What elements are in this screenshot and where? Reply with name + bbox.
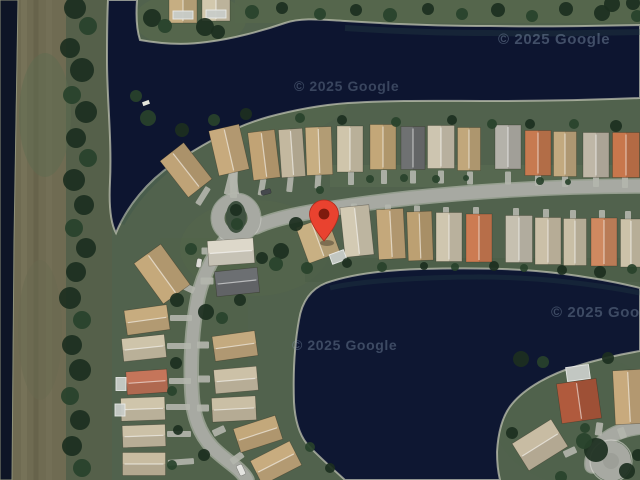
- driveway: [410, 171, 416, 184]
- tree: [62, 436, 82, 456]
- tree: [447, 115, 457, 125]
- tree: [79, 17, 97, 35]
- tree: [167, 460, 177, 470]
- house-roof: [121, 334, 166, 361]
- house-roof: [305, 127, 333, 176]
- google-watermark: © 2025 Google: [498, 31, 610, 48]
- tree: [240, 108, 252, 120]
- tree: [610, 120, 622, 132]
- tree: [377, 262, 387, 272]
- tree: [73, 311, 91, 329]
- tree: [75, 101, 97, 123]
- tree: [451, 263, 459, 271]
- tree: [536, 177, 544, 185]
- tree: [559, 2, 573, 16]
- pool-enclosure: [173, 11, 193, 19]
- tree: [487, 119, 497, 129]
- satellite-map: © 2025 Google © 2025 Google © 2025 Googl…: [0, 0, 640, 480]
- tree: [211, 25, 225, 39]
- tree: [491, 3, 505, 17]
- driveway: [169, 378, 191, 384]
- driveway: [505, 172, 511, 185]
- house-roof: [506, 216, 533, 263]
- house-roof: [370, 125, 396, 170]
- tree: [175, 123, 189, 137]
- house-roof: [525, 131, 551, 176]
- tree: [70, 410, 90, 430]
- tree: [140, 110, 156, 126]
- house-roof: [556, 378, 601, 423]
- house-roof: [337, 126, 363, 172]
- tree: [602, 352, 614, 364]
- house-roof: [407, 211, 434, 261]
- tree: [420, 262, 428, 270]
- tree: [526, 10, 538, 22]
- driveway: [166, 404, 190, 410]
- driveway: [197, 405, 209, 412]
- tree: [273, 243, 289, 259]
- tree: [432, 175, 440, 183]
- tree: [63, 169, 85, 191]
- house-roof: [122, 424, 166, 447]
- driveway: [167, 343, 191, 349]
- tree: [76, 238, 96, 258]
- tree: [167, 386, 177, 396]
- pool-enclosure: [566, 364, 591, 381]
- tree: [325, 463, 335, 473]
- tree: [576, 433, 592, 449]
- pin-shadow: [320, 240, 334, 246]
- tree: [400, 174, 408, 182]
- tree: [130, 90, 142, 102]
- google-watermark: © 2025 Google: [292, 337, 397, 353]
- house-roof: [214, 267, 259, 296]
- house-roof: [535, 218, 561, 265]
- house-roof: [621, 219, 640, 267]
- tree: [234, 294, 246, 306]
- tree: [422, 3, 434, 15]
- tree: [520, 264, 528, 272]
- house-roof: [613, 369, 640, 424]
- house-roof: [211, 396, 256, 422]
- tree: [619, 463, 635, 479]
- house-roof: [436, 213, 462, 262]
- google-watermark: © 2025 Google: [551, 304, 640, 321]
- tree: [537, 356, 549, 368]
- google-watermark: © 2025 Google: [294, 78, 399, 94]
- house-roof: [207, 238, 255, 266]
- house-roof: [613, 133, 640, 178]
- house-roof: [123, 453, 166, 476]
- tree: [383, 8, 397, 22]
- tree: [565, 179, 571, 185]
- tree: [66, 262, 86, 282]
- tree: [594, 266, 606, 278]
- tree: [158, 19, 172, 33]
- pool-enclosure: [115, 404, 125, 416]
- tree: [74, 195, 94, 215]
- tree: [230, 204, 242, 216]
- tree: [245, 5, 259, 19]
- house-roof: [340, 205, 374, 258]
- tree: [525, 119, 535, 129]
- map-canvas[interactable]: © 2025 Google © 2025 Google © 2025 Googl…: [0, 0, 640, 480]
- tree: [513, 351, 529, 367]
- driveway: [348, 171, 354, 185]
- tree: [170, 357, 182, 369]
- house-roof: [121, 397, 166, 422]
- tree: [216, 312, 228, 324]
- house-roof: [458, 128, 481, 171]
- tree: [295, 113, 305, 123]
- tree: [198, 304, 214, 320]
- tree: [391, 117, 401, 127]
- house-roof: [278, 128, 305, 178]
- house-roof: [428, 126, 455, 169]
- tree: [256, 252, 268, 264]
- tree: [208, 114, 220, 126]
- tree: [63, 86, 81, 104]
- tree: [456, 8, 468, 20]
- tree: [62, 335, 82, 355]
- pool-enclosure: [116, 378, 126, 391]
- tree: [70, 58, 94, 82]
- house-roof: [126, 369, 169, 395]
- house-roof: [248, 130, 281, 181]
- tree: [61, 387, 79, 405]
- tree: [569, 119, 579, 129]
- house-roof: [214, 366, 259, 394]
- house-roof: [591, 218, 617, 266]
- tree: [463, 175, 469, 181]
- tree: [305, 442, 315, 452]
- tree: [506, 427, 518, 439]
- tree: [73, 459, 91, 477]
- driveway: [381, 170, 387, 184]
- house-roof: [583, 133, 609, 178]
- tree: [231, 218, 243, 230]
- tree: [79, 149, 97, 167]
- tree: [289, 217, 303, 231]
- tree: [366, 175, 374, 183]
- driveway: [198, 376, 210, 383]
- tree: [173, 425, 183, 435]
- tree: [342, 258, 352, 268]
- tree: [557, 265, 567, 275]
- driveway: [170, 315, 192, 321]
- pin-hole: [319, 209, 330, 220]
- tree: [350, 4, 362, 16]
- tree: [301, 262, 313, 274]
- tree: [66, 128, 86, 148]
- driveway: [201, 278, 214, 285]
- driveway: [197, 342, 209, 349]
- house-roof: [466, 214, 492, 262]
- pool-enclosure: [206, 10, 226, 18]
- tree: [337, 115, 347, 125]
- tree: [580, 423, 590, 433]
- tree: [60, 38, 80, 58]
- tree: [185, 243, 197, 255]
- house-roof: [401, 127, 425, 170]
- house-roof: [376, 208, 406, 259]
- tree: [170, 293, 184, 307]
- field-green-patch: [19, 53, 71, 177]
- tree: [269, 257, 283, 271]
- tree: [314, 8, 326, 20]
- tree: [316, 186, 324, 194]
- house-roof: [554, 132, 577, 177]
- tree: [198, 449, 210, 461]
- tree: [65, 219, 83, 237]
- driveway: [622, 176, 628, 188]
- tree: [627, 264, 637, 274]
- field-patch: [18, 260, 62, 400]
- tree: [276, 2, 288, 14]
- tree: [69, 359, 91, 381]
- house-roof: [564, 219, 587, 266]
- house-roof: [495, 125, 521, 169]
- tree: [59, 287, 81, 309]
- tree: [489, 261, 499, 271]
